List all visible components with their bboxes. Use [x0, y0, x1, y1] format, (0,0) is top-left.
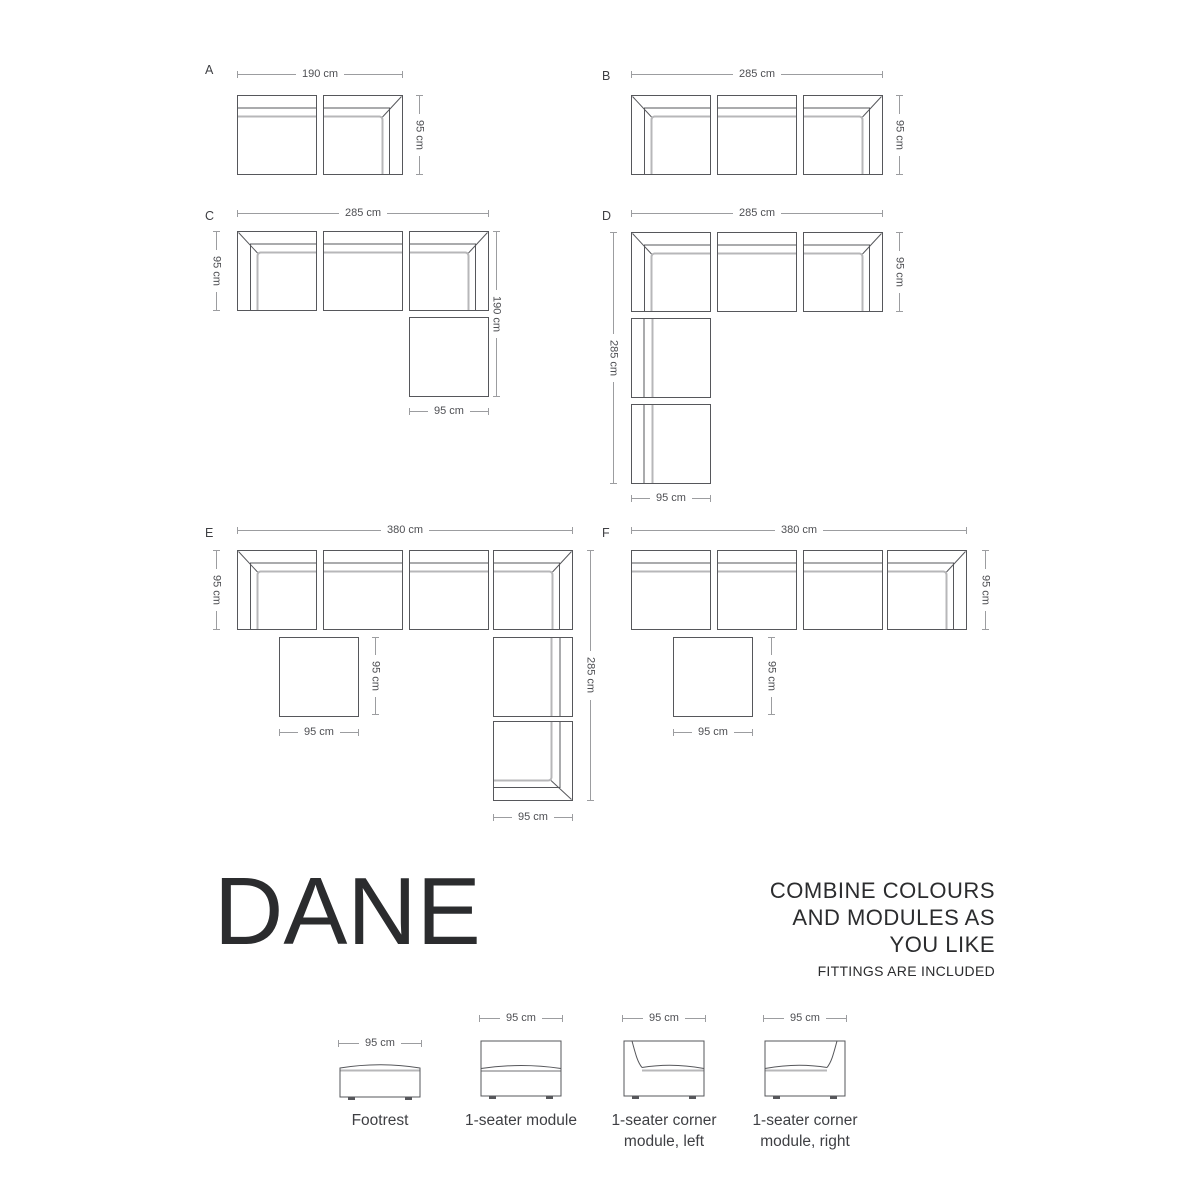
- message-note: FITTINGS ARE INCLUDED: [770, 963, 995, 979]
- dimension-label: 190 cm: [491, 290, 502, 338]
- module-footrest: [673, 637, 753, 717]
- dimension-line: [339, 1043, 359, 1044]
- module-corner-left: [237, 231, 317, 311]
- dimension-end-tick: [402, 71, 403, 78]
- dimension-line: [401, 1043, 421, 1044]
- module-seat: [717, 95, 797, 175]
- dimension-line: [632, 498, 650, 499]
- config-label-c: C: [205, 210, 214, 223]
- module-corner-left: [631, 232, 711, 312]
- module-corner-left: [237, 550, 317, 630]
- dimension-line: [496, 232, 497, 290]
- dimension-line: [238, 74, 296, 75]
- module-seat-left: [631, 404, 711, 484]
- dimension-line: [899, 96, 900, 114]
- dimension-label: 95 cm: [766, 655, 777, 697]
- module-seat: [717, 550, 797, 630]
- dimension-label: 95 cm: [784, 1013, 826, 1024]
- dimension-line: [623, 1018, 643, 1019]
- dimension-line: [590, 551, 591, 651]
- legend-label-corner-right: 1-seater cornermodule, right: [717, 1110, 893, 1152]
- dimension-end-tick: [896, 174, 903, 175]
- dimension-end-tick: [882, 71, 883, 78]
- module-seat: [803, 550, 883, 630]
- dimension-e: 285 cm: [587, 550, 594, 801]
- dimension-label: 95 cm: [359, 1038, 401, 1049]
- dimension-line: [632, 74, 733, 75]
- dimension-end-tick: [705, 1015, 706, 1022]
- module-footrest: [279, 637, 359, 717]
- dimension-line: [632, 530, 775, 531]
- dimension-line: [429, 530, 572, 531]
- dimension-end-tick: [213, 629, 220, 630]
- dimension-end-tick: [610, 483, 617, 484]
- dimension-c: 95 cm: [213, 231, 220, 311]
- dimension-end-tick: [213, 310, 220, 311]
- dimension-line: [823, 530, 966, 531]
- dimension-end-tick: [562, 1015, 563, 1022]
- module-seat: [323, 231, 403, 311]
- dimension-line: [216, 551, 217, 569]
- module-corner-left: [631, 95, 711, 175]
- dimension-end-tick: [493, 396, 500, 397]
- dimension-line: [826, 1018, 846, 1019]
- dimension-line: [764, 1018, 784, 1019]
- legend-drawing-one-seater: [479, 1039, 563, 1106]
- dimension-label: 95 cm: [980, 569, 991, 611]
- dimension-label: 95 cm: [414, 114, 425, 156]
- dimension-f: 95 cm: [982, 550, 989, 630]
- dimension-label: 285 cm: [608, 334, 619, 382]
- dimension-e: 95 cm: [213, 550, 220, 630]
- module-seat: [631, 550, 711, 630]
- dimension-end-tick: [982, 629, 989, 630]
- dimension-line: [419, 156, 420, 174]
- module-corner-right: [409, 231, 489, 311]
- config-label-e: E: [205, 527, 213, 540]
- dimension-line: [470, 411, 488, 412]
- dimension-line: [613, 382, 614, 483]
- dimension-e: 95 cm: [279, 729, 359, 736]
- dimension-line: [375, 638, 376, 655]
- dimension-label: 380 cm: [381, 525, 429, 536]
- legend-drawing-corner-left: [622, 1039, 706, 1106]
- module-seat-right: [493, 637, 573, 717]
- dimension-end-tick: [966, 527, 967, 534]
- dimension-line: [985, 611, 986, 629]
- dimension-label: 95 cm: [692, 727, 734, 738]
- config-label-b: B: [602, 70, 610, 83]
- dimension-label: 95 cm: [211, 250, 222, 292]
- dimension-label: 95 cm: [211, 569, 222, 611]
- dimension-line: [632, 213, 733, 214]
- dimension-line: [674, 732, 692, 733]
- dimension-end-tick: [752, 729, 753, 736]
- dimension-line: [419, 96, 420, 114]
- dimension-line: [899, 156, 900, 174]
- message-line-2: AND MODULES AS: [770, 904, 995, 931]
- dimension-line: [899, 293, 900, 311]
- module-seat: [717, 232, 797, 312]
- dimension-line: [216, 611, 217, 629]
- dimension-label: 95 cm: [643, 1013, 685, 1024]
- legend-dimension-footrest: 95 cm: [338, 1040, 422, 1047]
- dimension-e: 95 cm: [372, 637, 379, 715]
- dimension-end-tick: [358, 729, 359, 736]
- config-label-a: A: [205, 64, 213, 77]
- dimension-line: [692, 498, 710, 499]
- legend-label-line: 1-seater corner: [717, 1110, 893, 1131]
- diagram-canvas: A190 cm95 cmB285 cm95 cmC285 cm95 cm190 …: [0, 0, 1200, 1200]
- dimension-label: 95 cm: [370, 655, 381, 697]
- legend-dimension-corner-right: 95 cm: [763, 1015, 847, 1022]
- dimension-line: [238, 530, 381, 531]
- module-footrest: [409, 317, 489, 397]
- message-block: COMBINE COLOURS AND MODULES AS YOU LIKE …: [770, 877, 995, 979]
- dimension-line: [899, 233, 900, 251]
- dimension-f: 380 cm: [631, 527, 967, 534]
- legend-label-line: module, right: [717, 1131, 893, 1152]
- config-label-d: D: [602, 210, 611, 223]
- dimension-end-tick: [710, 495, 711, 502]
- dimension-line: [216, 292, 217, 310]
- dimension-end-tick: [587, 800, 594, 801]
- legend-dimension-corner-left: 95 cm: [622, 1015, 706, 1022]
- dimension-line: [554, 817, 572, 818]
- module-corner-right: [887, 550, 967, 630]
- message-line-3: YOU LIKE: [770, 931, 995, 958]
- dimension-line: [480, 1018, 500, 1019]
- dimension-b: 95 cm: [896, 95, 903, 175]
- module-seat: [409, 550, 489, 630]
- dimension-c: 95 cm: [409, 408, 489, 415]
- dimension-label: 95 cm: [512, 812, 554, 823]
- dimension-line: [375, 697, 376, 714]
- dimension-line: [494, 817, 512, 818]
- dimension-b: 285 cm: [631, 71, 883, 78]
- dimension-f: 95 cm: [768, 637, 775, 715]
- dimension-a: 190 cm: [237, 71, 403, 78]
- dimension-label: 380 cm: [775, 525, 823, 536]
- dimension-line: [340, 732, 358, 733]
- legend-drawing-footrest: [338, 1059, 422, 1108]
- dimension-end-tick: [421, 1040, 422, 1047]
- module-seat: [237, 95, 317, 175]
- dimension-line: [771, 697, 772, 714]
- dimension-label: 285 cm: [733, 69, 781, 80]
- dimension-line: [238, 213, 339, 214]
- brand-title: DANE: [214, 864, 481, 960]
- dimension-label: 95 cm: [894, 251, 905, 293]
- dimension-end-tick: [768, 714, 775, 715]
- dimension-end-tick: [896, 311, 903, 312]
- dimension-line: [590, 700, 591, 800]
- module-corner-right: [803, 95, 883, 175]
- dimension-f: 95 cm: [673, 729, 753, 736]
- dimension-e: 95 cm: [493, 814, 573, 821]
- dimension-line: [985, 551, 986, 569]
- dimension-e: 380 cm: [237, 527, 573, 534]
- dimension-label: 95 cm: [650, 493, 692, 504]
- dimension-end-tick: [882, 210, 883, 217]
- dimension-line: [734, 732, 752, 733]
- dimension-line: [280, 732, 298, 733]
- dimension-label: 285 cm: [733, 208, 781, 219]
- dimension-label: 95 cm: [428, 406, 470, 417]
- dimension-label: 285 cm: [585, 651, 596, 699]
- dimension-c: 285 cm: [237, 210, 489, 217]
- dimension-end-tick: [846, 1015, 847, 1022]
- dimension-end-tick: [572, 527, 573, 534]
- dimension-end-tick: [488, 408, 489, 415]
- dimension-end-tick: [416, 174, 423, 175]
- config-label-f: F: [602, 527, 610, 540]
- module-seat-left: [631, 318, 711, 398]
- dimension-label: 95 cm: [894, 114, 905, 156]
- dimension-line: [344, 74, 402, 75]
- dimension-d: 95 cm: [631, 495, 711, 502]
- dimension-line: [771, 638, 772, 655]
- message-line-1: COMBINE COLOURS: [770, 877, 995, 904]
- dimension-d: 285 cm: [631, 210, 883, 217]
- module-corner-right: [323, 95, 403, 175]
- legend-dimension-one-seater: 95 cm: [479, 1015, 563, 1022]
- dimension-line: [781, 74, 882, 75]
- dimension-d: 95 cm: [896, 232, 903, 312]
- dimension-line: [216, 232, 217, 250]
- module-seat: [323, 550, 403, 630]
- module-corner-right: [493, 550, 573, 630]
- dimension-line: [496, 338, 497, 396]
- dimension-line: [410, 411, 428, 412]
- dimension-c: 190 cm: [493, 231, 500, 397]
- dimension-d: 285 cm: [610, 232, 617, 484]
- dimension-label: 190 cm: [296, 69, 344, 80]
- dimension-line: [685, 1018, 705, 1019]
- dimension-line: [542, 1018, 562, 1019]
- dimension-end-tick: [572, 814, 573, 821]
- dimension-end-tick: [488, 210, 489, 217]
- module-corner-right-bottom: [493, 721, 573, 801]
- dimension-label: 285 cm: [339, 208, 387, 219]
- dimension-label: 95 cm: [500, 1013, 542, 1024]
- dimension-line: [387, 213, 488, 214]
- dimension-line: [781, 213, 882, 214]
- dimension-label: 95 cm: [298, 727, 340, 738]
- dimension-end-tick: [372, 714, 379, 715]
- dimension-a: 95 cm: [416, 95, 423, 175]
- legend-drawing-corner-right: [763, 1039, 847, 1106]
- dimension-line: [613, 233, 614, 334]
- module-corner-right: [803, 232, 883, 312]
